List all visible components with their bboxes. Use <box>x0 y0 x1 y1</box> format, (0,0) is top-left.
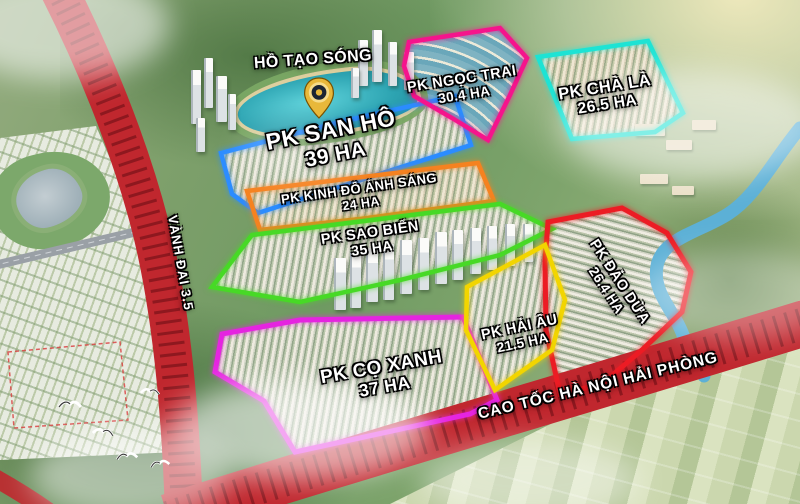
lake-pin-icon[interactable] <box>303 76 335 120</box>
dashed-boundary <box>8 342 128 428</box>
masterplan-map: HỒ TẠO SÓNG PK SAN HÔ 39 HA PK NGỌC TRAI… <box>0 0 800 504</box>
city-avenue <box>0 228 152 266</box>
